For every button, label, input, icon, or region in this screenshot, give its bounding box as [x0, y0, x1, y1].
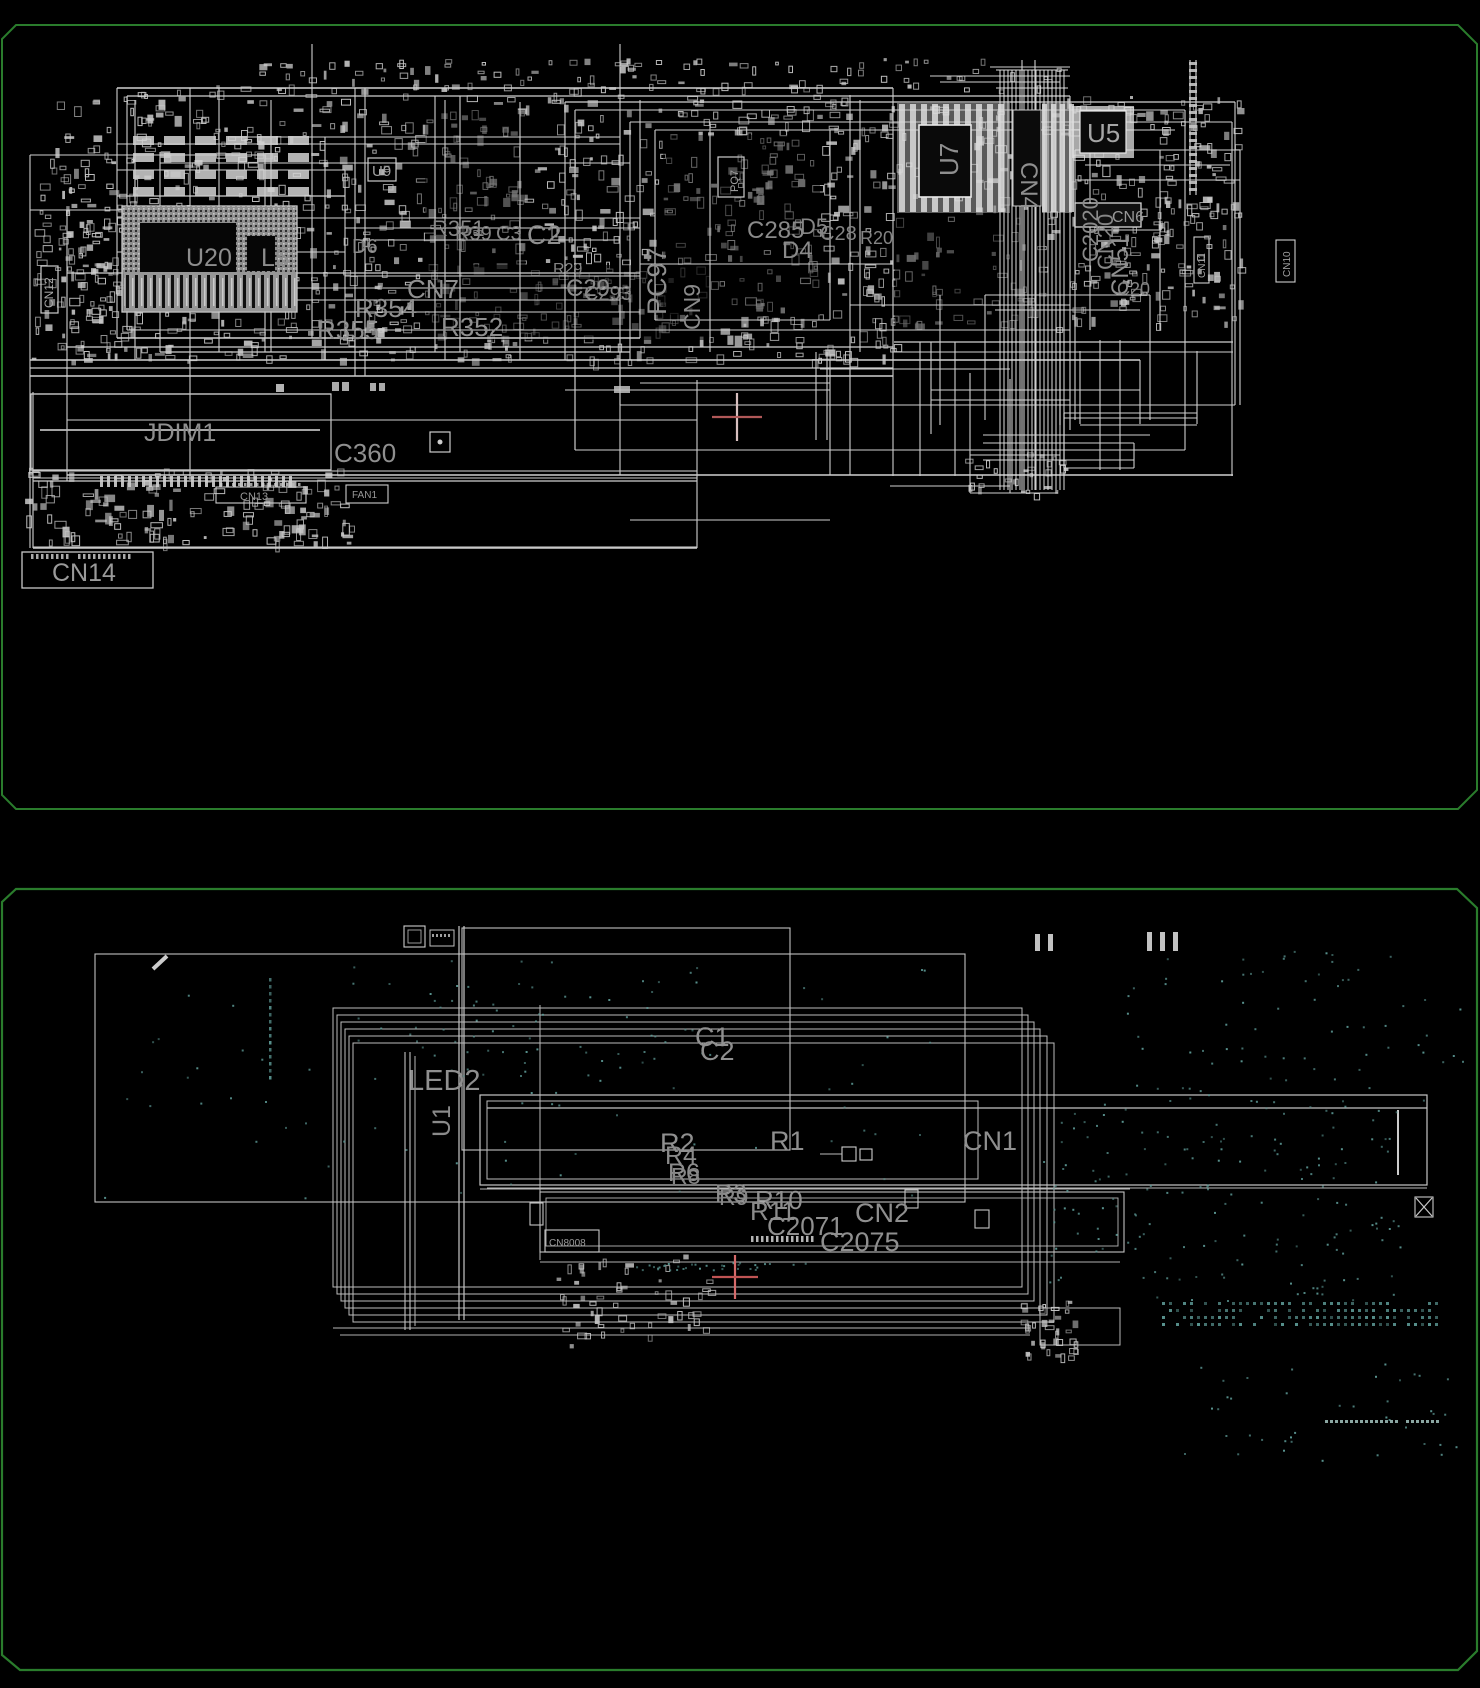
svg-text:PQ7: PQ7: [729, 170, 741, 192]
svg-text:CN11: CN11: [1197, 253, 1208, 278]
svg-text:D6: D6: [352, 236, 378, 258]
svg-text:R352: R352: [441, 312, 503, 342]
svg-text:C2075: C2075: [820, 1227, 900, 1257]
svg-text:U5: U5: [1087, 118, 1120, 148]
svg-text:R29: R29: [553, 261, 582, 278]
svg-text:R20: R20: [860, 228, 893, 248]
svg-text:C2: C2: [527, 220, 562, 250]
svg-text:R8: R8: [671, 1163, 700, 1189]
svg-text:C2: C2: [700, 1036, 735, 1066]
svg-text:FAN1: FAN1: [352, 490, 377, 501]
svg-text:C28: C28: [820, 223, 857, 245]
svg-text:CN10: CN10: [1282, 251, 1293, 277]
svg-text:C293: C293: [584, 283, 632, 305]
svg-text:C20: C20: [1117, 279, 1150, 299]
svg-text:L5: L5: [261, 244, 289, 272]
svg-text:R355: R355: [317, 315, 379, 345]
svg-text:JDIM1: JDIM1: [144, 419, 216, 447]
svg-text:C3: C3: [496, 223, 522, 245]
svg-text:LED2: LED2: [408, 1065, 481, 1097]
svg-text:U1: U1: [428, 1105, 456, 1137]
svg-text:CN2: CN2: [855, 1198, 909, 1228]
svg-text:CN1: CN1: [963, 1126, 1017, 1156]
svg-text:CN9: CN9: [679, 284, 705, 330]
svg-text:CN7: CN7: [407, 274, 459, 304]
svg-text:U9: U9: [372, 163, 391, 180]
svg-text:D4: D4: [782, 237, 813, 264]
svg-text:R1: R1: [770, 1126, 805, 1156]
svg-text:U7: U7: [934, 143, 964, 176]
svg-text:CN12: CN12: [42, 277, 56, 308]
svg-text:PC97: PC97: [642, 247, 672, 315]
svg-text:U20: U20: [186, 244, 232, 272]
svg-text:R39: R39: [455, 223, 492, 245]
svg-text:CN8008: CN8008: [549, 1238, 586, 1249]
svg-text:C360: C360: [334, 438, 396, 468]
svg-text:R9: R9: [719, 1184, 748, 1210]
svg-text:CN13: CN13: [240, 491, 268, 503]
svg-text:CN14: CN14: [52, 559, 116, 587]
svg-text:CN4: CN4: [1015, 162, 1042, 210]
